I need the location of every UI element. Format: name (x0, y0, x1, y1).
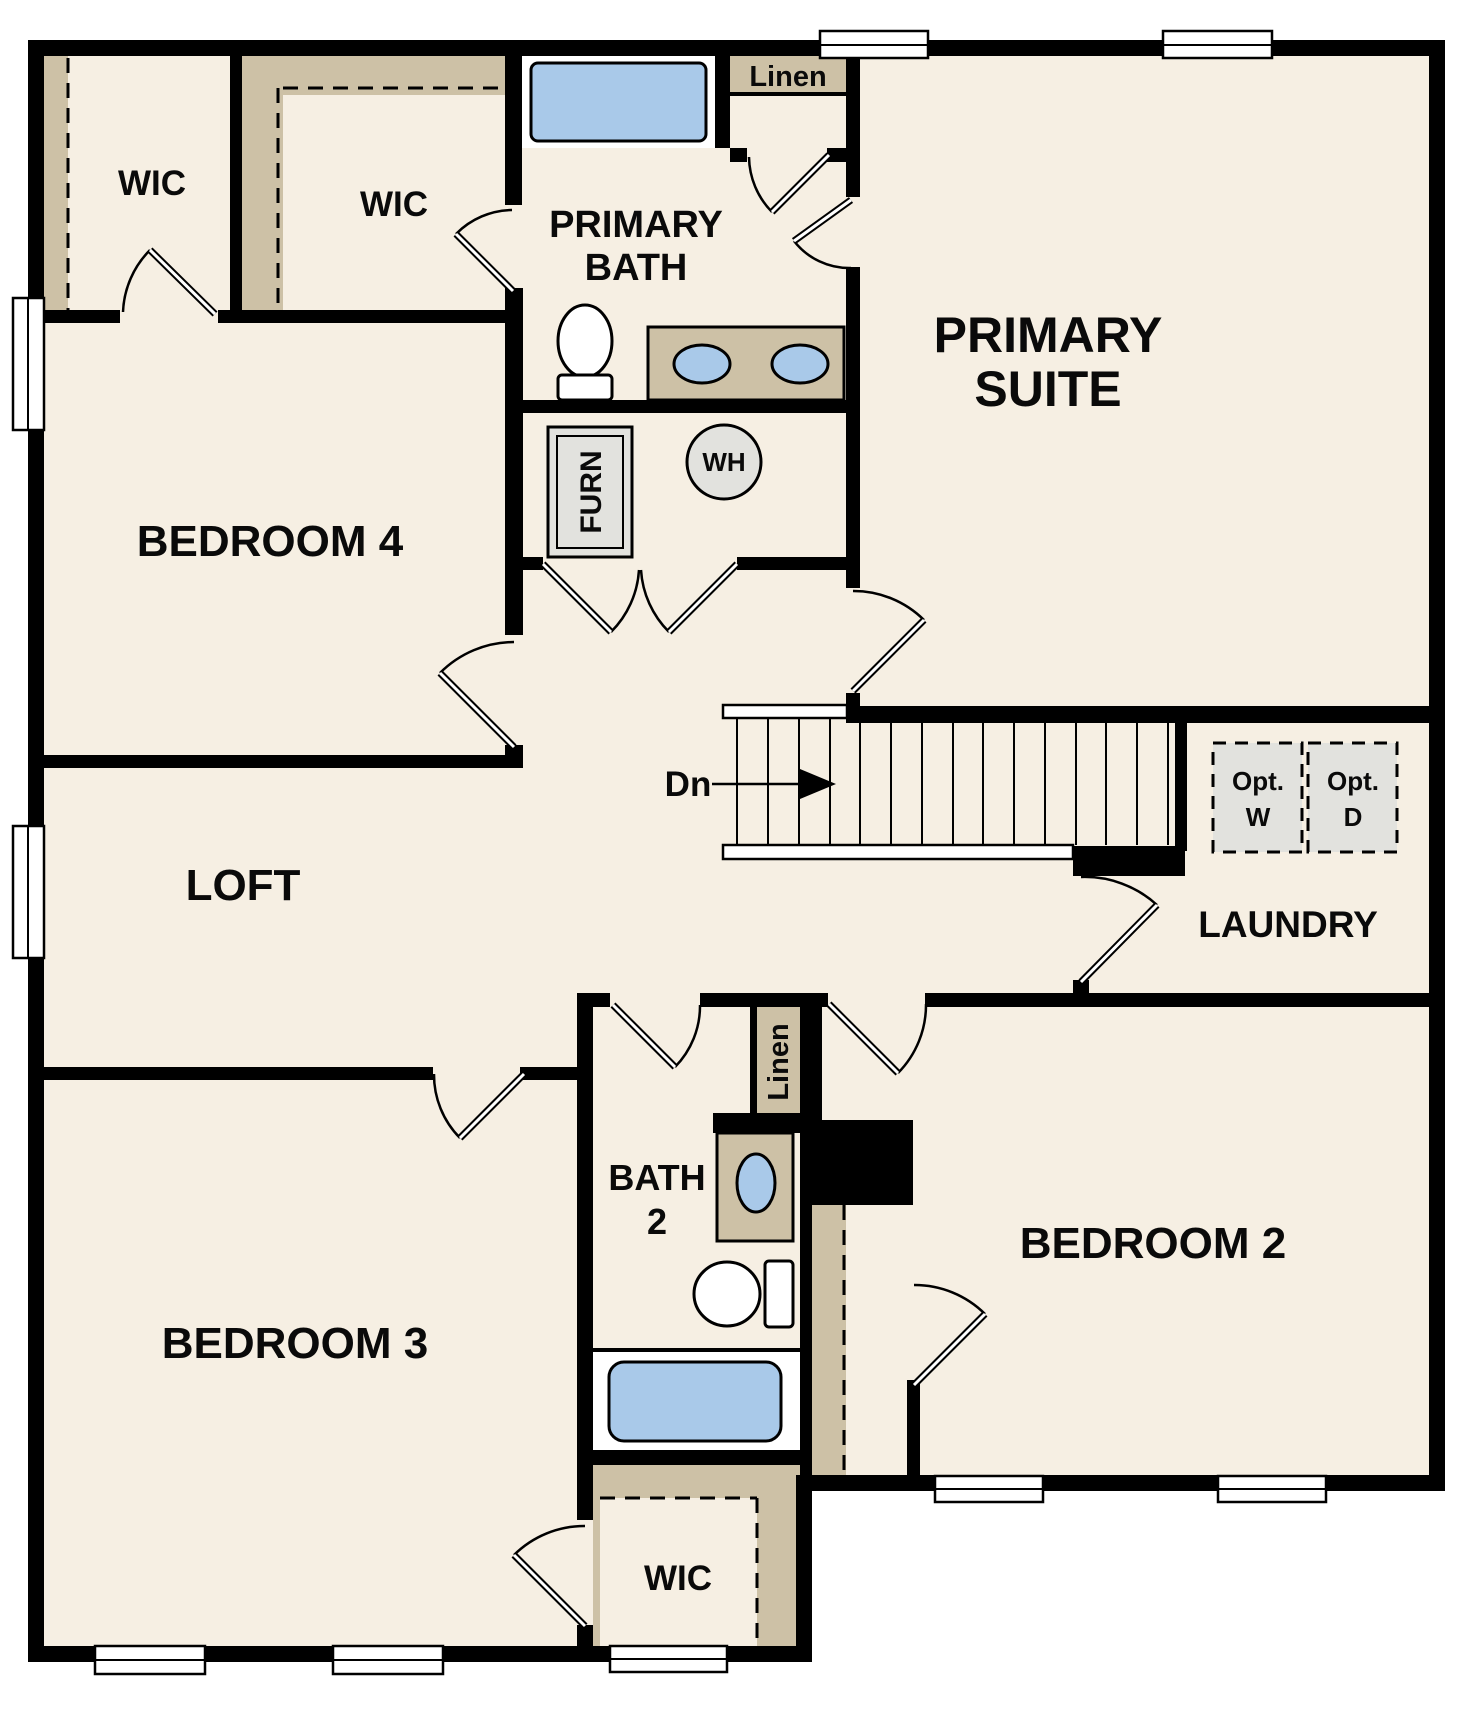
wall (218, 310, 505, 323)
wall (730, 148, 747, 162)
wic-top-left-shelf (44, 56, 68, 310)
wall (925, 993, 1445, 1007)
wall (522, 557, 543, 570)
wall (28, 1067, 433, 1080)
primary-toilet-icon (558, 305, 612, 377)
primary-suite-label-line1: PRIMARY (934, 307, 1163, 363)
bath2-toilet-icon (694, 1262, 760, 1326)
laundry-label: LAUNDRY (1198, 904, 1378, 945)
wall (715, 56, 730, 148)
wall (505, 56, 522, 205)
wall (505, 288, 523, 635)
wall (577, 993, 593, 1520)
wall (800, 1203, 812, 1475)
linen-bath2-label: Linen (763, 1023, 795, 1100)
wall (796, 1475, 1445, 1491)
stairs-down-label: Dn (665, 765, 712, 804)
wall (827, 148, 846, 162)
loft-label: LOFT (186, 861, 301, 910)
wall (700, 993, 828, 1007)
stair-rail-bottom (723, 845, 1073, 859)
wall (846, 706, 1443, 723)
wall (907, 1380, 920, 1475)
stair-rail-top (723, 705, 847, 718)
wall (577, 993, 610, 1007)
primary-bath-label-line2: BATH (585, 247, 688, 289)
wall (846, 267, 860, 588)
water-heater-label: WH (702, 447, 745, 477)
wic-bottom-label: WIC (644, 1559, 712, 1598)
wall (577, 1625, 593, 1646)
wall (1175, 706, 1187, 851)
wic-top-mid-label: WIC (360, 185, 428, 224)
wall (230, 56, 242, 310)
linen-bath2-side (750, 1007, 757, 1113)
primary-toilet-tank (558, 375, 612, 400)
floor-plan-drawing: WIC WIC PRIMARY BATH Linen PRIMARY SUITE… (0, 0, 1470, 1711)
primary-tub-icon (531, 63, 706, 141)
wall (796, 1475, 812, 1662)
wall (577, 1450, 800, 1465)
opt-dryer-label-line1: Opt. (1327, 766, 1379, 796)
opt-washer-label-line1: Opt. (1232, 766, 1284, 796)
bedroom2-closet-shelf (812, 1203, 846, 1475)
wall (520, 1067, 577, 1080)
bath2-toilet-tank (765, 1261, 793, 1327)
optional-dryer-icon (1308, 743, 1397, 852)
opt-washer-label-line2: W (1246, 802, 1271, 832)
wall (800, 1003, 822, 1120)
bath2-label-line1: BATH (608, 1157, 705, 1198)
bath2-tub-icon (609, 1362, 781, 1441)
primary-suite-label-line2: SUITE (974, 361, 1121, 417)
opt-dryer-label-line2: D (1344, 802, 1363, 832)
floor-plan: WIC WIC PRIMARY BATH Linen PRIMARY SUITE… (0, 0, 1470, 1711)
wall (713, 1113, 800, 1133)
bedroom2-label: BEDROOM 2 (1020, 1219, 1286, 1268)
wic-top-left-label: WIC (118, 164, 186, 203)
bedroom3-label: BEDROOM 3 (162, 1319, 428, 1368)
wall (522, 400, 846, 413)
furnace-label: FURN (575, 450, 608, 533)
wall (1073, 846, 1185, 876)
tub2-edge (593, 1348, 800, 1352)
bath2-label-line2: 2 (647, 1201, 667, 1242)
chase-mass (800, 1120, 913, 1205)
optional-washer-icon (1213, 743, 1302, 852)
primary-sink-right-icon (772, 345, 828, 383)
wall (28, 755, 523, 768)
primary-sink-left-icon (674, 345, 730, 383)
bedroom4-label: BEDROOM 4 (137, 517, 404, 566)
wall (737, 557, 846, 570)
linen-top-label: Linen (749, 61, 826, 93)
bath2-sink-icon (737, 1154, 775, 1212)
wall (846, 56, 860, 197)
primary-bath-label-line1: PRIMARY (549, 204, 723, 246)
wall (1429, 40, 1445, 1491)
